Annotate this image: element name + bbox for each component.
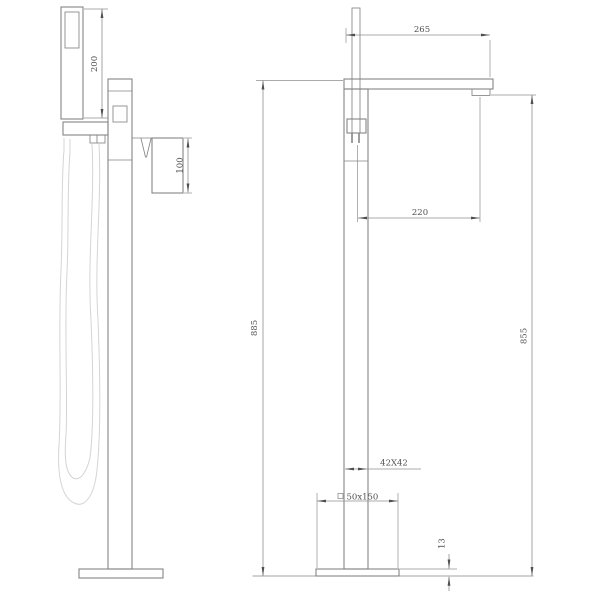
hose-nut — [90, 135, 105, 143]
diverter-button — [113, 106, 127, 122]
dimension-handle-height: 100 — [176, 138, 193, 193]
base-plate-side — [79, 569, 163, 578]
aerator — [472, 89, 490, 96]
dimension-column-section: 42X42 — [345, 459, 421, 470]
dimension-label-200: 200 — [90, 56, 100, 72]
dimension-rod-to-outlet: 220 — [358, 97, 481, 222]
hose-coupling — [347, 119, 366, 143]
dimension-handshower-length: 200 — [84, 9, 108, 118]
dimension-label-42x42: 42X42 — [380, 459, 408, 469]
dimension-label-100: 100 — [176, 157, 186, 173]
dimension-base-section: 50x150 — [317, 493, 398, 569]
dimension-label-885: 885 — [250, 320, 260, 336]
dimension-label-50x150: 50x150 — [347, 493, 379, 503]
dimension-label-855: 855 — [520, 328, 530, 344]
dimension-label-13: 13 — [438, 538, 448, 549]
handle-neck — [141, 139, 151, 158]
dimension-spout-reach: 265 — [346, 25, 490, 77]
dimension-label-265: 265 — [414, 25, 430, 35]
hand-shower — [61, 7, 83, 119]
base-plate-front — [316, 569, 399, 576]
technical-drawing-canvas: 200 100 — [0, 0, 600, 600]
dimension-label-220: 220 — [412, 208, 428, 218]
spray-face — [65, 12, 79, 48]
side-view: 200 100 — [59, 7, 192, 578]
square-section-icon — [338, 494, 343, 499]
spout — [344, 79, 493, 89]
dimension-base-thickness: 13 — [400, 538, 457, 591]
front-view: 265 220 885 855 42X42 — [250, 8, 536, 591]
riser-column-side — [108, 79, 132, 569]
slide-rod — [352, 8, 360, 119]
drawing-page: 200 100 — [0, 0, 600, 600]
dimension-outlet-height: 855 — [491, 95, 536, 576]
shower-hose — [59, 138, 100, 504]
shower-holder — [63, 122, 108, 135]
dimension-total-height: 885 — [250, 81, 343, 577]
